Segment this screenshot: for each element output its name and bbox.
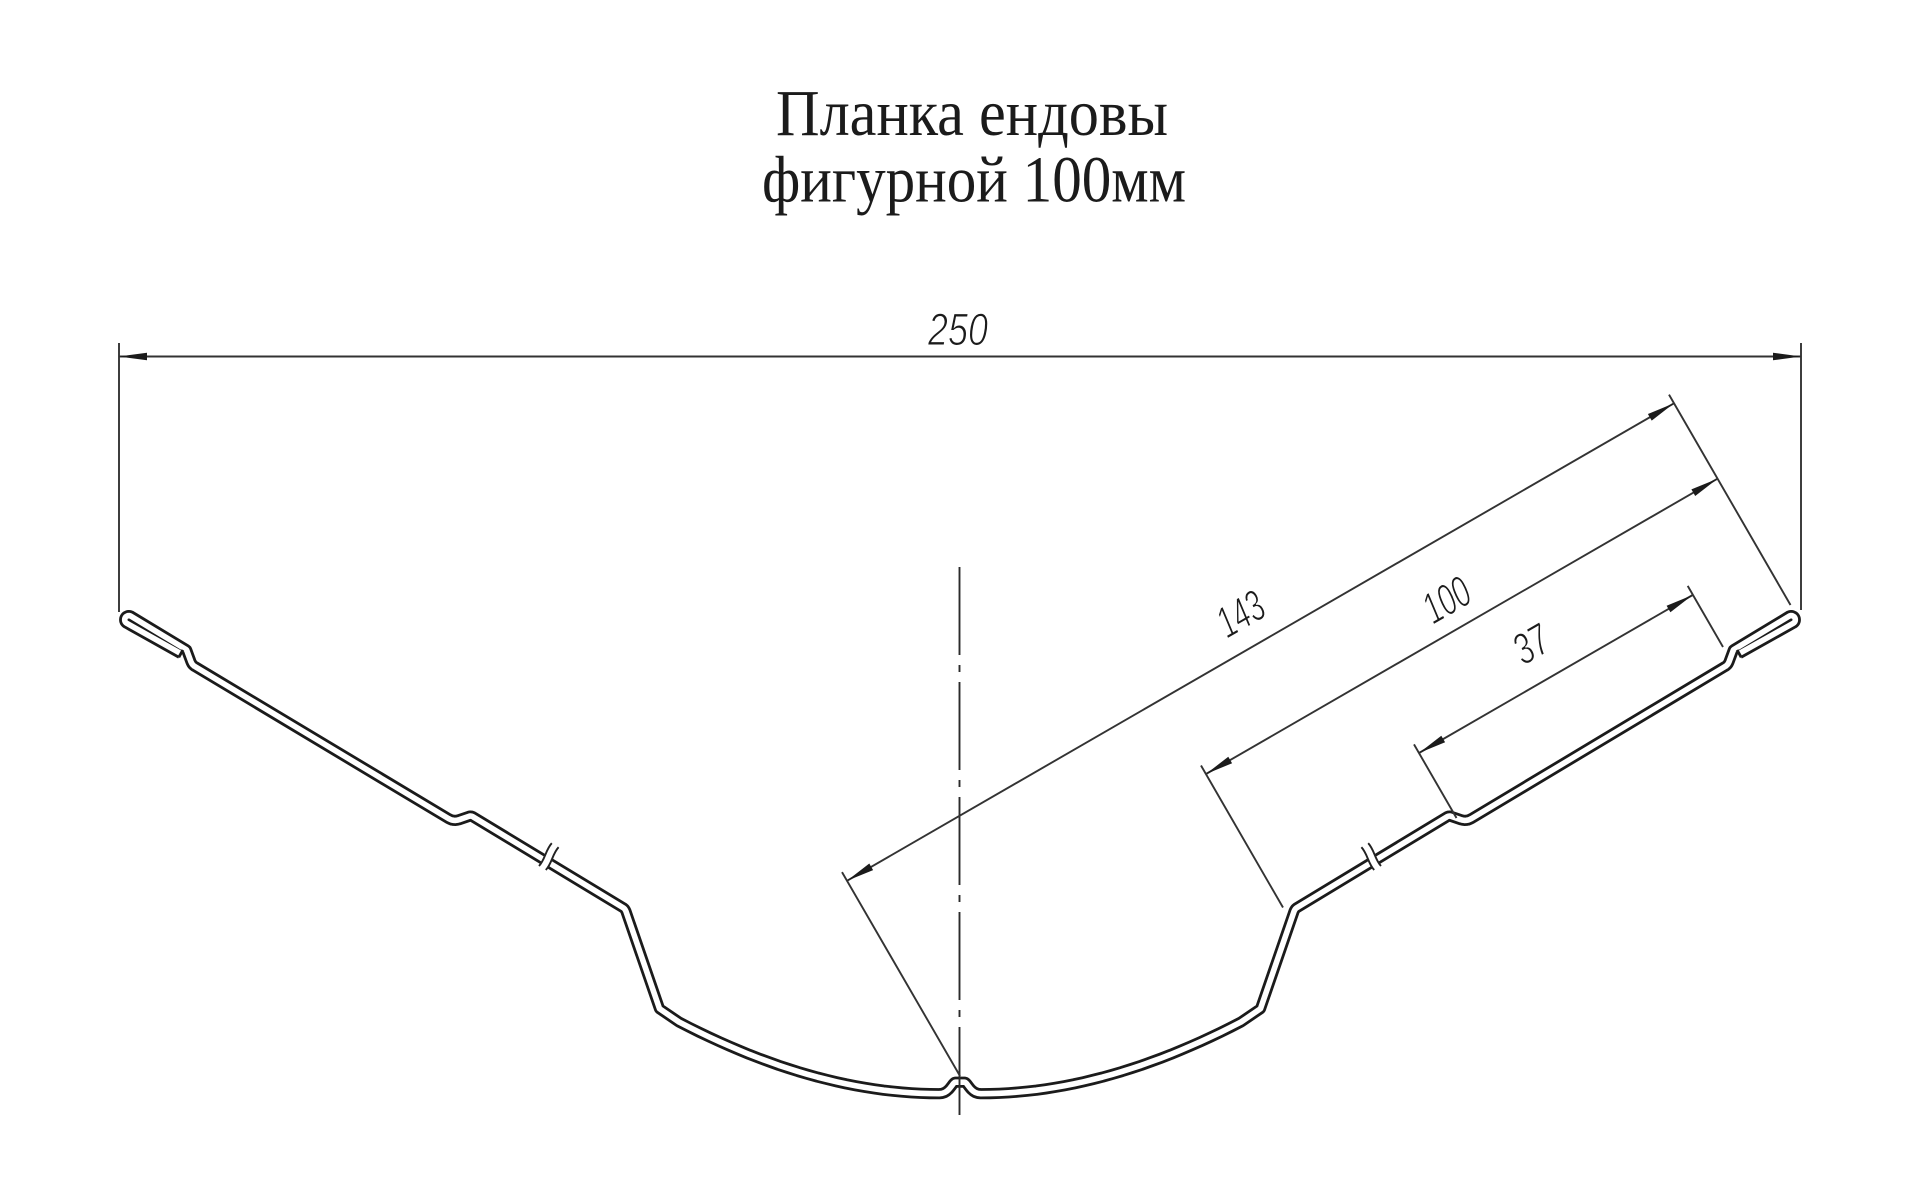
svg-text:фигурной 100мм: фигурной 100мм [762, 144, 1186, 217]
svg-text:Планка ендовы: Планка ендовы [776, 77, 1168, 150]
svg-text:250: 250 [927, 304, 988, 355]
